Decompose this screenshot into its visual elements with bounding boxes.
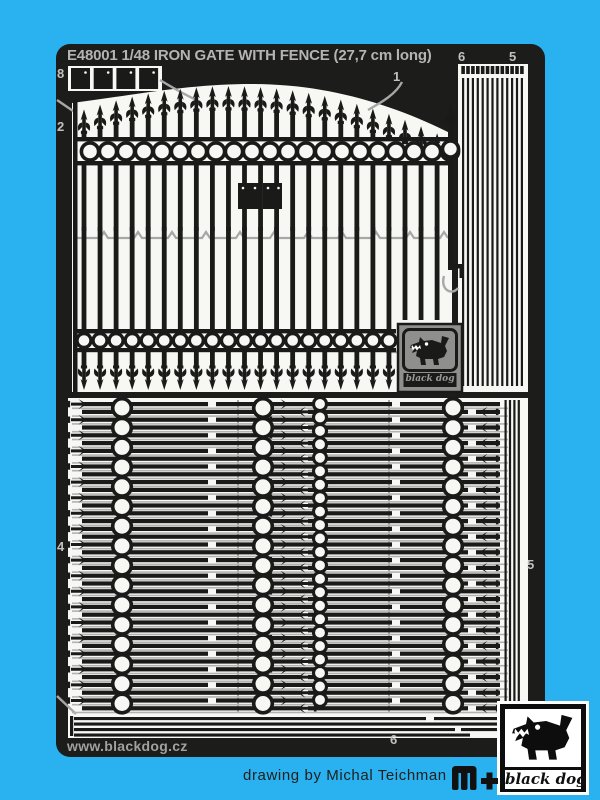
part-label-hinges: 8 (57, 66, 64, 81)
corner-logo-wordmark: black dog (505, 770, 581, 788)
part-label-gate-left: 2 (57, 119, 64, 134)
mplus-logo-icon (452, 766, 498, 790)
part-label-gate-top: 1 (393, 69, 400, 84)
part-label-strips-outer: 5 (509, 49, 516, 64)
credit-line: drawing by Michal Teichman (243, 767, 447, 784)
part-label-strips-inner: 6 (458, 49, 465, 64)
part-label-fence-left: 4 (57, 539, 64, 554)
website-url: www.blackdog.cz (67, 738, 188, 754)
part-label-rails-bottom: 6 (390, 732, 397, 747)
sheet-title: E48001 1/48 IRON GATE WITH FENCE (27,7 c… (67, 47, 459, 64)
product-image: E48001 1/48 IRON GATE WITH FENCE (27,7 c… (0, 0, 600, 800)
pe-fret-sheet (0, 0, 600, 800)
part-label-fence-right: 5 (527, 557, 534, 572)
etched-logo-wordmark: black dog (402, 374, 458, 384)
